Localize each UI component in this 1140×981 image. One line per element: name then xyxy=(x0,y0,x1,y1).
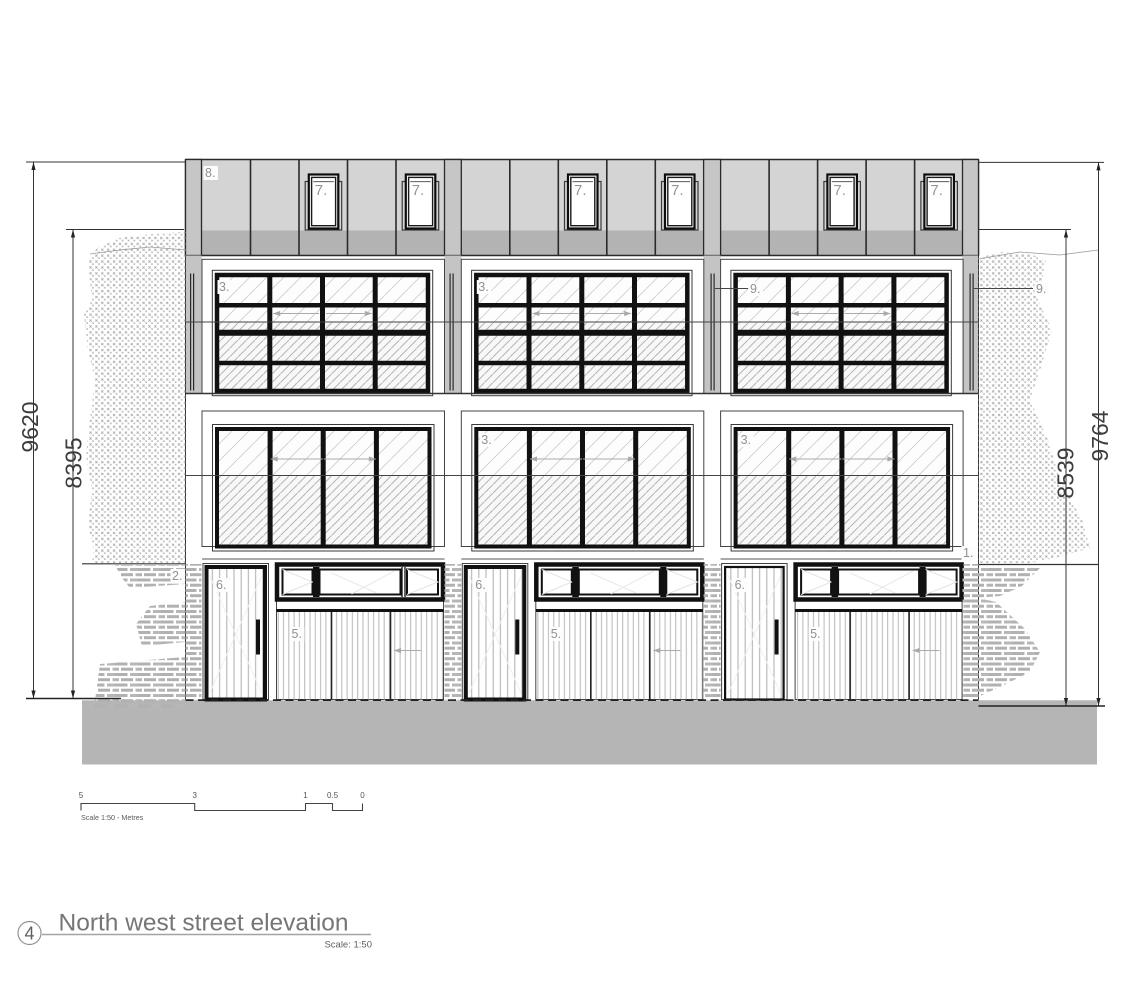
svg-text:5.: 5. xyxy=(810,627,820,641)
svg-text:3: 3 xyxy=(192,791,197,800)
svg-text:6.: 6. xyxy=(475,578,485,592)
svg-text:7.: 7. xyxy=(574,182,587,199)
svg-text:Scale 1:50 - Metres: Scale 1:50 - Metres xyxy=(81,813,144,822)
svg-text:3.: 3. xyxy=(481,433,491,447)
svg-text:8539: 8539 xyxy=(1053,447,1079,498)
svg-text:5.: 5. xyxy=(551,627,561,641)
svg-text:3.: 3. xyxy=(741,433,751,447)
svg-text:7.: 7. xyxy=(833,182,846,199)
svg-text:5: 5 xyxy=(79,791,84,800)
svg-text:3.: 3. xyxy=(219,280,229,294)
svg-text:9.: 9. xyxy=(750,282,760,296)
svg-text:1: 1 xyxy=(303,791,308,800)
svg-text:9620: 9620 xyxy=(17,401,43,452)
svg-text:8395: 8395 xyxy=(61,437,87,488)
svg-text:3.: 3. xyxy=(478,280,488,294)
svg-text:Scale: 1:50: Scale: 1:50 xyxy=(324,940,372,951)
svg-text:6.: 6. xyxy=(735,578,745,592)
svg-text:7.: 7. xyxy=(315,182,328,199)
svg-text:9.: 9. xyxy=(1036,282,1046,296)
svg-text:North west street elevation: North west street elevation xyxy=(59,910,349,937)
svg-text:0.5: 0.5 xyxy=(327,791,339,800)
svg-text:7.: 7. xyxy=(671,182,684,199)
svg-text:8.: 8. xyxy=(205,166,215,180)
svg-text:1.: 1. xyxy=(963,546,973,560)
svg-text:4: 4 xyxy=(24,924,34,944)
svg-text:5.: 5. xyxy=(292,627,302,641)
svg-text:9764: 9764 xyxy=(1087,410,1113,461)
svg-text:7.: 7. xyxy=(930,182,943,199)
svg-text:0: 0 xyxy=(360,791,365,800)
svg-text:6.: 6. xyxy=(216,578,226,592)
svg-text:7.: 7. xyxy=(412,182,425,199)
svg-text:2.: 2. xyxy=(172,569,182,583)
